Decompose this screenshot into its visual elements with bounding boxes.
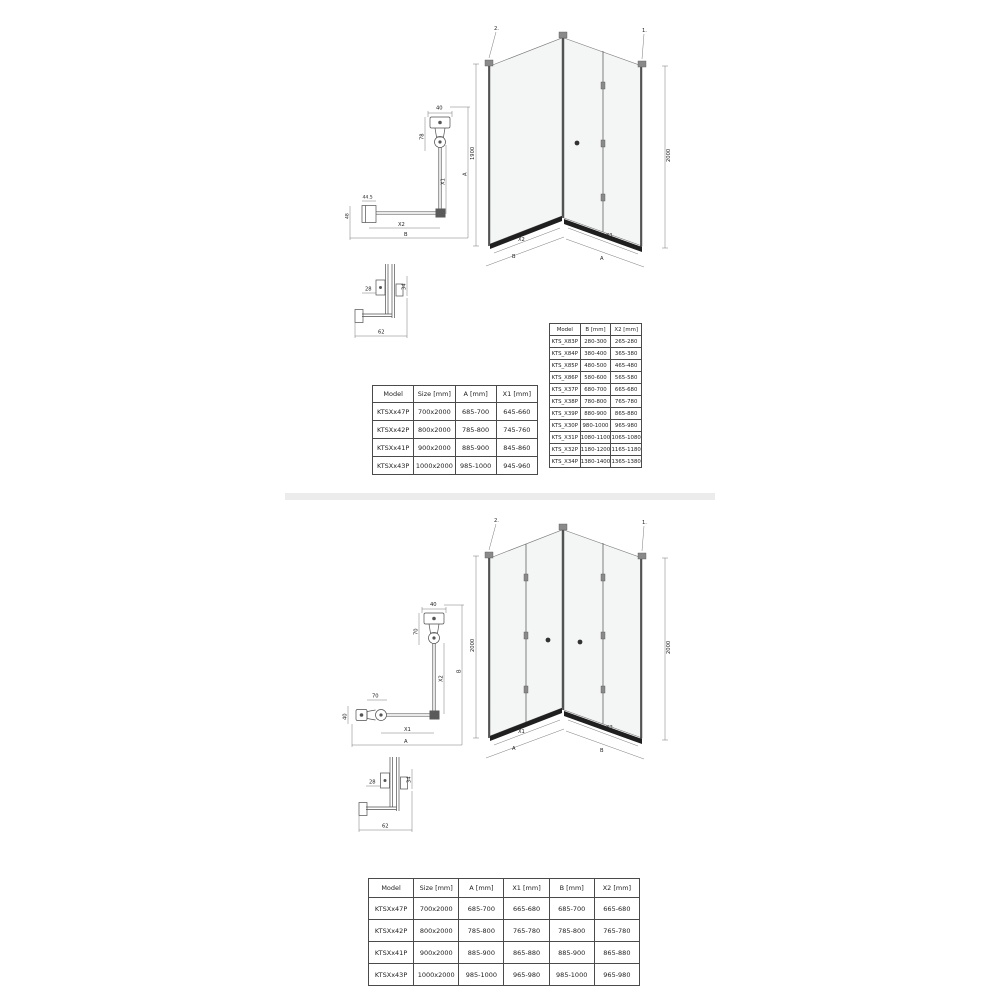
table-cell: KTS_X37P	[550, 384, 581, 396]
column-header: A [mm]	[459, 879, 504, 898]
screw-icon	[360, 713, 364, 717]
table-cell: 965-980	[504, 964, 549, 986]
table-row: KTSXx42P800x2000785-800745-760	[373, 421, 538, 439]
column-header: B [mm]	[549, 879, 594, 898]
table-cell: KTS_X85P	[550, 360, 581, 372]
table-row: KTSXx43P1000x2000985-1000965-980985-1000…	[369, 964, 640, 986]
table-cell: 465-480	[611, 360, 642, 372]
step-callout-right: 1.	[642, 520, 647, 526]
table-cell: 865-880	[594, 942, 639, 964]
table-cell: 945-960	[496, 457, 537, 475]
table-cell: 780-800	[580, 396, 611, 408]
step-callout-left: 2.	[494, 26, 499, 32]
table-cell: 700x2000	[414, 898, 459, 920]
table-row: KTS_X32P1180-12001165-1180	[550, 444, 642, 456]
wall-profile	[362, 206, 376, 223]
table-cell: 665-680	[504, 898, 549, 920]
hinge-icon	[601, 574, 605, 581]
table-cell: 380-400	[580, 348, 611, 360]
dim-label-48: 48	[345, 213, 351, 219]
table-cell: 865-880	[611, 408, 642, 420]
table-row: KTS_X38P780-800765-780	[550, 396, 642, 408]
column-header: Size [mm]	[414, 386, 455, 403]
table-cell: KTSXx41P	[369, 942, 414, 964]
screw-icon	[384, 779, 387, 782]
dim-label-62: 62	[382, 824, 389, 830]
table-row: KTS_X83P280-300265-280	[550, 336, 642, 348]
dim-label-28: 28	[365, 287, 372, 293]
column-header: B [mm]	[580, 324, 611, 336]
dim-label-34: 34	[402, 283, 408, 290]
table-cell: KTS_X31P	[550, 432, 581, 444]
table-cell: 765-780	[611, 396, 642, 408]
combined-size-table-grid: ModelSize [mm]A [mm]X1 [mm]B [mm]X2 [mm]…	[368, 878, 640, 986]
table-cell: KTS_X30P	[550, 420, 581, 432]
dim-label-height-right: 2000	[666, 641, 672, 654]
step-callout-right: 1.	[642, 28, 647, 34]
table-cell: 765-780	[504, 920, 549, 942]
plan-detail-bottom: 40 70 70 40 X1 A X2 B	[336, 593, 471, 758]
hinge-icon	[601, 632, 605, 639]
step-callout-left: 2.	[494, 518, 499, 524]
table-cell: KTSXx47P	[373, 403, 414, 421]
table-cell: KTS_X84P	[550, 348, 581, 360]
corner-connector	[430, 711, 440, 720]
table-cell: 1165-1180	[611, 444, 642, 456]
column-header: A [mm]	[455, 386, 496, 403]
corner-top-cap-icon	[559, 32, 567, 38]
table-row: KTSXx43P1000x2000985-1000945-960	[373, 457, 538, 475]
end-profile	[359, 803, 367, 816]
table-row: KTS_X34P1380-14001365-1380	[550, 456, 642, 468]
dim-label-62: 62	[378, 330, 385, 336]
table-cell: KTSXx43P	[369, 964, 414, 986]
dim-label-x1: X1	[606, 233, 613, 239]
table-row: KTS_X84P380-400365-380	[550, 348, 642, 360]
iso-diagram-top: 2. 1. 1900 2000 X2 B X1 A	[468, 20, 673, 278]
door-size-table-grid: ModelSize [mm]A [mm]X1 [mm]KTSXx47P700x2…	[372, 385, 538, 475]
top-cap-icon	[638, 553, 646, 559]
table-cell: 980-1000	[580, 420, 611, 432]
table-cell: 1380-1400	[580, 456, 611, 468]
table-cell: 280-300	[580, 336, 611, 348]
table-cell: 1365-1380	[611, 456, 642, 468]
table-cell: KTSXx42P	[369, 920, 414, 942]
end-profile	[355, 310, 363, 323]
joint-detail-top: 28 34 62	[344, 260, 429, 352]
table-cell: 985-1000	[459, 964, 504, 986]
dim-label-a: A	[512, 746, 516, 752]
table-cell: 885-900	[459, 942, 504, 964]
dim-label-b: B	[404, 232, 408, 238]
dim-label-70-left: 70	[372, 694, 379, 700]
door-handle-icon	[546, 638, 551, 643]
hinge-icon	[601, 686, 605, 693]
dim-label-x2: X2	[398, 222, 405, 228]
table-cell: 785-800	[455, 421, 496, 439]
column-header: X1 [mm]	[496, 386, 537, 403]
table-row: KTS_X39P880-900865-880	[550, 408, 642, 420]
dim-label-44-5: 44.5	[363, 195, 373, 201]
table-cell: 965-980	[594, 964, 639, 986]
dim-label-x2: X2	[439, 675, 445, 682]
dim-label-b: B	[600, 748, 604, 754]
dim-label-x1: X1	[404, 727, 411, 733]
table-row: KTS_X31P1080-11001065-1080	[550, 432, 642, 444]
dim-label-40-left: 40	[343, 713, 349, 720]
top-cap-icon	[559, 524, 567, 530]
hinge-icon	[524, 686, 528, 693]
section-divider	[285, 493, 715, 500]
table-cell: KTS_X83P	[550, 336, 581, 348]
dim-label-height-right: 2000	[666, 149, 672, 162]
dim-label-34: 34	[407, 776, 413, 783]
dim-label-a: A	[600, 256, 604, 262]
table-cell: KTS_X39P	[550, 408, 581, 420]
wall-size-table: ModelB [mm]X2 [mm]KTS_X83P280-300265-280…	[549, 323, 642, 468]
table-cell: 665-680	[594, 898, 639, 920]
table-cell: KTSXx42P	[373, 421, 414, 439]
corner-connector	[436, 209, 446, 218]
dim-label-b: B	[457, 669, 463, 673]
table-cell: 580-600	[580, 372, 611, 384]
table-cell: 685-700	[549, 898, 594, 920]
table-cell: 745-760	[496, 421, 537, 439]
table-cell: 700x2000	[414, 403, 455, 421]
table-cell: 480-500	[580, 360, 611, 372]
table-cell: 785-800	[549, 920, 594, 942]
door-handle-icon	[578, 640, 583, 645]
table-cell: KTS_X38P	[550, 396, 581, 408]
table-cell: 645-660	[496, 403, 537, 421]
wall-top-cap-icon	[485, 60, 493, 66]
plan-detail-top: 40 78 X1 A 44.5 48 X2 B	[340, 95, 475, 255]
screw-icon	[432, 617, 436, 621]
dim-label-40: 40	[430, 602, 437, 608]
dim-label-40: 40	[436, 106, 443, 112]
hinge-icon	[524, 632, 528, 639]
table-row: KTS_X37P680-700665-680	[550, 384, 642, 396]
table-header-row: ModelSize [mm]A [mm]X1 [mm]B [mm]X2 [mm]	[369, 879, 640, 898]
dim-label-x1: X1	[441, 178, 447, 185]
screw-icon	[438, 121, 442, 125]
table-cell: 1000x2000	[414, 457, 455, 475]
dim-label-x1: X1	[518, 729, 525, 735]
table-header-row: ModelB [mm]X2 [mm]	[550, 324, 642, 336]
table-cell: 985-1000	[455, 457, 496, 475]
table-cell: 800x2000	[414, 920, 459, 942]
table-cell: 865-880	[504, 942, 549, 964]
technical-datasheet-page: 2. 1. 1900 2000 X2 B X1 A	[0, 0, 1000, 1000]
hinge-icon	[601, 82, 605, 89]
dim-label-78: 78	[420, 133, 426, 140]
iso-diagram-bottom: 2. 1. 2000 2000 X1 A X2 B	[468, 512, 673, 770]
column-header: Model	[373, 386, 414, 403]
column-header: X2 [mm]	[594, 879, 639, 898]
dim-label-a: A	[463, 172, 469, 176]
table-cell: 885-900	[455, 439, 496, 457]
table-cell: 885-900	[549, 942, 594, 964]
column-header: X2 [mm]	[611, 324, 642, 336]
table-cell: 565-580	[611, 372, 642, 384]
table-cell: 900x2000	[414, 942, 459, 964]
table-header-row: ModelSize [mm]A [mm]X1 [mm]	[373, 386, 538, 403]
table-row: KTS_X85P480-500465-480	[550, 360, 642, 372]
joint-detail-bottom: 28 34 62	[344, 752, 434, 847]
table-cell: 1065-1080	[611, 432, 642, 444]
dim-label-x2: X2	[606, 725, 613, 731]
table-row: KTSXx47P700x2000685-700665-680685-700665…	[369, 898, 640, 920]
column-header: Model	[550, 324, 581, 336]
table-cell: KTS_X86P	[550, 372, 581, 384]
door-handle-icon	[575, 141, 580, 146]
hinge-icon	[524, 574, 528, 581]
table-cell: KTSXx41P	[373, 439, 414, 457]
column-header: Size [mm]	[414, 879, 459, 898]
table-cell: KTSXx47P	[369, 898, 414, 920]
dim-label-a: A	[404, 739, 408, 745]
table-cell: 680-700	[580, 384, 611, 396]
table-cell: 965-980	[611, 420, 642, 432]
dim-label-28: 28	[369, 780, 376, 786]
hinge-icon	[601, 140, 605, 147]
dim-label-b: B	[512, 254, 516, 260]
table-row: KTS_X30P980-1000965-980	[550, 420, 642, 432]
table-cell: 1080-1100	[580, 432, 611, 444]
door-top-cap-icon	[638, 61, 646, 67]
table-cell: 665-680	[611, 384, 642, 396]
dim-label-x2: X2	[518, 237, 525, 243]
table-cell: 1000x2000	[414, 964, 459, 986]
table-cell: 265-280	[611, 336, 642, 348]
table-cell: 800x2000	[414, 421, 455, 439]
table-cell: KTS_X34P	[550, 456, 581, 468]
table-cell: 880-900	[580, 408, 611, 420]
fixed-wall-glass	[490, 38, 562, 244]
table-cell: 365-380	[611, 348, 642, 360]
table-row: KTSXx47P700x2000685-700645-660	[373, 403, 538, 421]
table-row: KTSXx41P900x2000885-900865-880885-900865…	[369, 942, 640, 964]
column-header: X1 [mm]	[504, 879, 549, 898]
hinge-icon	[601, 194, 605, 201]
top-cap-icon	[485, 552, 493, 558]
screw-icon	[379, 286, 382, 289]
table-cell: 785-800	[459, 920, 504, 942]
wall-size-table-grid: ModelB [mm]X2 [mm]KTS_X83P280-300265-280…	[549, 323, 642, 468]
dim-label-70: 70	[414, 628, 420, 635]
table-cell: KTSXx43P	[373, 457, 414, 475]
table-cell: 685-700	[459, 898, 504, 920]
table-cell: KTS_X32P	[550, 444, 581, 456]
table-cell: 845-860	[496, 439, 537, 457]
table-cell: 765-780	[594, 920, 639, 942]
table-cell: 900x2000	[414, 439, 455, 457]
table-row: KTSXx41P900x2000885-900845-860	[373, 439, 538, 457]
door-size-table: ModelSize [mm]A [mm]X1 [mm]KTSXx47P700x2…	[372, 385, 538, 475]
table-cell: 685-700	[455, 403, 496, 421]
table-cell: 1180-1200	[580, 444, 611, 456]
table-cell: 985-1000	[549, 964, 594, 986]
table-row: KTSXx42P800x2000785-800765-780785-800765…	[369, 920, 640, 942]
column-header: Model	[369, 879, 414, 898]
table-row: KTS_X86P580-600565-580	[550, 372, 642, 384]
combined-size-table: ModelSize [mm]A [mm]X1 [mm]B [mm]X2 [mm]…	[368, 878, 640, 986]
